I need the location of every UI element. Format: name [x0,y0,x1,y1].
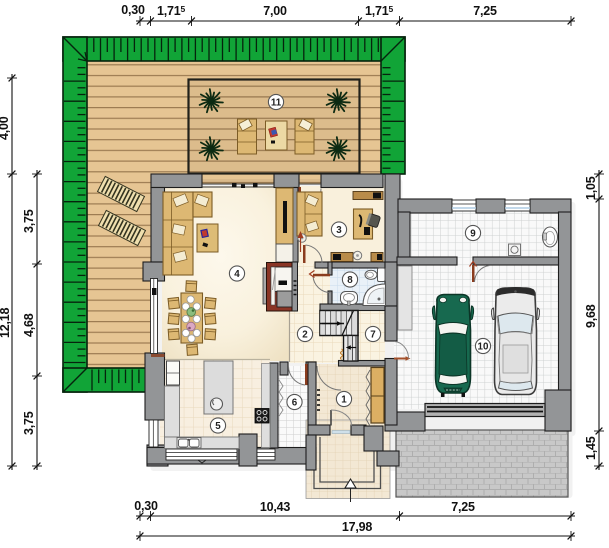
svg-text:0,30: 0,30 [121,3,145,17]
svg-text:12,18: 12,18 [0,307,12,338]
svg-text:4,00: 4,00 [0,116,11,140]
svg-text:7,25: 7,25 [473,4,497,18]
svg-text:9,68: 9,68 [584,304,598,328]
svg-text:7: 7 [370,330,376,341]
svg-text:11: 11 [271,98,282,109]
svg-text:17,98: 17,98 [342,520,373,534]
svg-text:4: 4 [234,269,240,280]
svg-text:9: 9 [470,229,476,240]
svg-text:7,00: 7,00 [263,4,287,18]
svg-text:5: 5 [215,421,221,432]
svg-text:10: 10 [478,342,489,353]
svg-text:6: 6 [292,398,298,409]
svg-text:3: 3 [336,225,342,236]
svg-text:1,45: 1,45 [584,436,598,460]
svg-text:2: 2 [302,330,308,341]
svg-text:0,30: 0,30 [134,499,158,513]
svg-text:1,05: 1,05 [584,176,598,200]
svg-text:3,75: 3,75 [22,209,36,233]
svg-text:1: 1 [341,395,347,406]
svg-text:7,25: 7,25 [451,500,475,514]
svg-text:3,75: 3,75 [22,411,36,435]
svg-text:4,68: 4,68 [22,313,36,337]
svg-text:10,43: 10,43 [260,500,291,514]
svg-text:8: 8 [347,275,353,286]
